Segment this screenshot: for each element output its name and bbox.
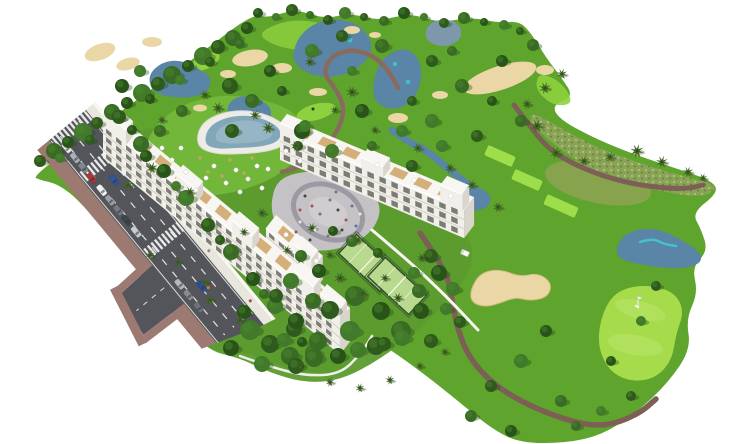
roof-umbrella — [412, 178, 416, 182]
resort-aerial-render — [0, 0, 740, 444]
roof-umbrella — [284, 232, 288, 236]
roof-umbrella — [314, 259, 318, 263]
roof-umbrella — [448, 194, 452, 198]
roof-umbrella — [375, 162, 379, 166]
aerial-render-page — [0, 0, 740, 444]
